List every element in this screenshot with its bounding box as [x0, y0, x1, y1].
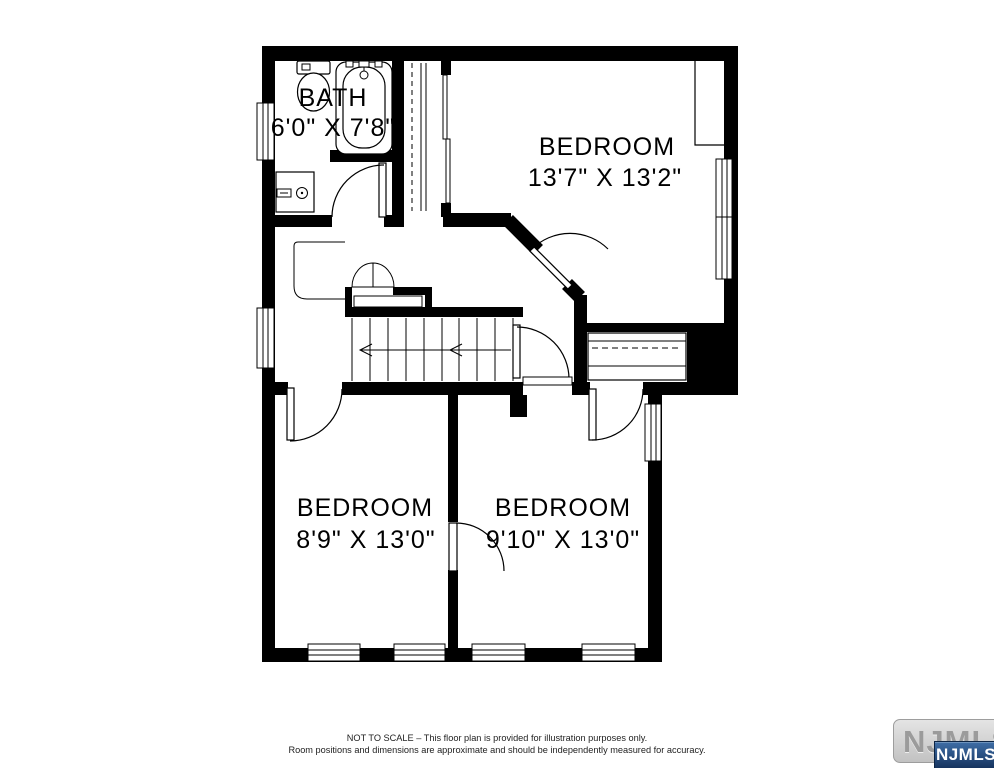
wall-top — [262, 46, 738, 61]
wall-hallcloset-right — [425, 287, 432, 315]
bifold-door-icon — [352, 263, 373, 287]
door-bath — [332, 163, 386, 217]
slider-panel-2 — [446, 139, 450, 203]
sink-vanity-icon — [276, 172, 314, 212]
jamb-slider-top — [441, 61, 451, 75]
bath-dims: 6'0" X 7'8" — [271, 114, 395, 142]
bedroom-right-label: BEDROOM — [495, 494, 631, 522]
hall-nook-outline — [294, 242, 345, 299]
wall-hallcloset-left — [345, 287, 352, 315]
window-bedroom-top-right-2 — [716, 217, 732, 279]
wall-bath-hall-left — [275, 215, 332, 227]
slider-panel-1 — [443, 75, 447, 139]
window-bottom-2 — [394, 644, 445, 661]
bedroom-top-dims: 13'7" X 13'2" — [528, 164, 682, 192]
wall-mass-right — [687, 323, 738, 391]
door-landing — [513, 325, 572, 385]
jamb-slider-bottom — [441, 203, 451, 217]
wall-bath-hall-right — [384, 215, 404, 227]
njmls-badge-text: NJMLS — [935, 742, 994, 768]
disclaimer-line-2: Room positions and dimensions are approx… — [0, 745, 994, 757]
wall-corridor-bedroom — [443, 213, 511, 227]
door-bedroom-right-closet — [589, 389, 643, 440]
bedroom-left-dims: 8'9" X 13'0" — [296, 526, 435, 554]
hall-closet-shelf — [354, 296, 422, 307]
floor-plan-drawing: BATH 6'0" X 7'8" BEDROOM 13'7" X 13'2" B… — [0, 0, 994, 768]
wall-divider-lower — [448, 570, 458, 648]
wall-mid-d — [643, 382, 738, 395]
wall-recess-outline — [695, 61, 727, 145]
bedroom-right-dims: 9'10" X 13'0" — [486, 526, 640, 554]
wall-landing-right — [574, 295, 587, 395]
window-bottom-1 — [308, 644, 360, 661]
wall-diagonal-upper — [508, 220, 538, 250]
wall-mid-c — [572, 382, 590, 395]
window-bottom-4 — [582, 644, 635, 661]
floor-plan-page: BATH 6'0" X 7'8" BEDROOM 13'7" X 13'2" B… — [0, 0, 994, 768]
disclaimer: NOT TO SCALE – This floor plan is provid… — [0, 733, 994, 756]
bath-label: BATH — [299, 84, 368, 112]
wall-stub — [510, 395, 527, 417]
door-threshold — [523, 377, 572, 385]
window-bottom-3 — [472, 644, 525, 661]
closet-bedroom-right — [588, 333, 686, 380]
door-bedroom-top-diagonal — [530, 233, 608, 289]
staircase — [352, 318, 513, 381]
wall-closet-top — [580, 323, 687, 332]
bedroom-top-label: BEDROOM — [539, 133, 675, 161]
window-hall-left — [257, 308, 274, 368]
wall-divider-upper — [448, 390, 458, 522]
wall-mid-b — [342, 382, 523, 395]
bifold-door-icon — [373, 263, 394, 287]
njmls-badge: NJMLS — [934, 741, 994, 768]
window-bedroom-right-side — [645, 404, 661, 461]
wall-mid-a — [275, 382, 288, 395]
hall-closet — [352, 263, 422, 307]
window-bedroom-top-right-1 — [716, 159, 732, 217]
closet-outline — [588, 333, 686, 380]
disclaimer-line-1: NOT TO SCALE – This floor plan is provid… — [0, 733, 994, 745]
door-bedroom-left — [287, 388, 342, 441]
wall-stair-top — [345, 307, 523, 317]
bedroom-left-label: BEDROOM — [297, 494, 433, 522]
